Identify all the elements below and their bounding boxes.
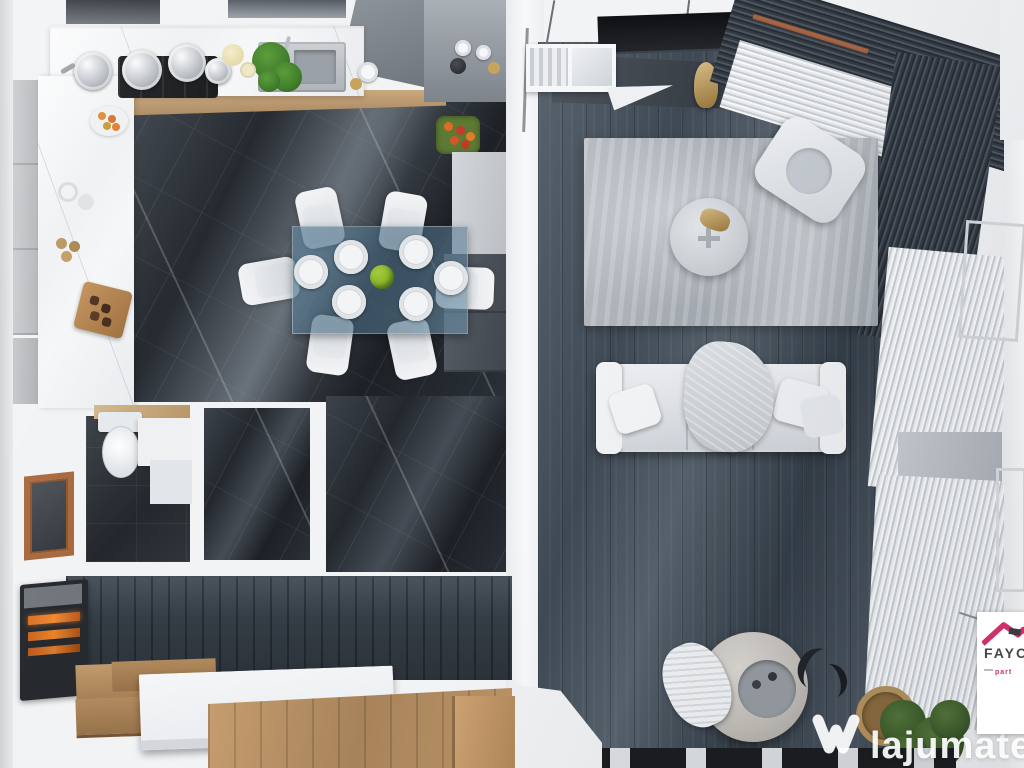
window-frame bbox=[996, 468, 1024, 592]
storage-niche-floor bbox=[204, 408, 310, 560]
tray-cups bbox=[752, 680, 761, 689]
dinner-plate bbox=[332, 285, 366, 319]
stair-step bbox=[76, 734, 146, 768]
right-wall-corner bbox=[1000, 0, 1024, 140]
sofa-pillow bbox=[799, 393, 845, 439]
toilet bbox=[102, 426, 140, 478]
mixing-bowl bbox=[74, 52, 112, 90]
fayo-partner-badge: FAYO part bbox=[977, 612, 1024, 734]
fayo-subtitle: part bbox=[995, 669, 1012, 676]
lemonade-pitcher bbox=[222, 44, 244, 66]
gold-saucer bbox=[488, 62, 500, 74]
coffee-cup bbox=[455, 40, 471, 56]
bathroom-vanity bbox=[138, 418, 190, 466]
herb-plant bbox=[258, 70, 280, 92]
orange-flowers bbox=[98, 112, 106, 120]
drinking-glasses bbox=[58, 182, 78, 202]
spice-jars bbox=[56, 238, 67, 249]
watermark-brand: lajumate bbox=[870, 731, 1024, 761]
badge-dash bbox=[984, 669, 993, 671]
window-frame bbox=[958, 220, 1024, 342]
coffee-machine bbox=[450, 58, 466, 74]
kitchen-upper-cabinet bbox=[228, 0, 346, 18]
dining-floor-lower bbox=[326, 396, 512, 572]
espresso-cup bbox=[358, 62, 378, 82]
dinner-plate bbox=[294, 255, 328, 289]
kitchen-upper-cabinet bbox=[66, 0, 160, 24]
pink-roof-house-icon bbox=[982, 620, 1024, 651]
table-leg-mark bbox=[706, 228, 711, 248]
stair-step bbox=[75, 697, 146, 738]
orange-framed-window bbox=[24, 471, 74, 560]
floor-plan-render: lajumate .ro FAYO part bbox=[0, 0, 1024, 768]
dinner-plate bbox=[434, 261, 468, 295]
drink-glass bbox=[240, 62, 256, 78]
coffee-cup bbox=[476, 45, 491, 60]
bathroom-vanity bbox=[150, 460, 192, 504]
dinner-plate bbox=[399, 287, 433, 321]
red-flower-box bbox=[436, 116, 480, 154]
cooking-pot bbox=[168, 44, 206, 82]
red-flowers bbox=[444, 122, 453, 131]
apple-centerpiece bbox=[370, 265, 394, 289]
lajumate-w-heart-icon bbox=[812, 712, 860, 761]
dinner-plate bbox=[334, 240, 368, 274]
shelf-decor bbox=[572, 48, 612, 86]
cooking-pot bbox=[122, 50, 162, 90]
shelf-decor bbox=[530, 48, 568, 86]
outer-wall-edge bbox=[0, 0, 13, 768]
stair-step-right bbox=[452, 696, 515, 768]
gold-dish bbox=[350, 78, 362, 90]
flower-plate bbox=[90, 106, 128, 136]
dinner-plate bbox=[399, 235, 433, 269]
serving-tray bbox=[738, 660, 796, 718]
